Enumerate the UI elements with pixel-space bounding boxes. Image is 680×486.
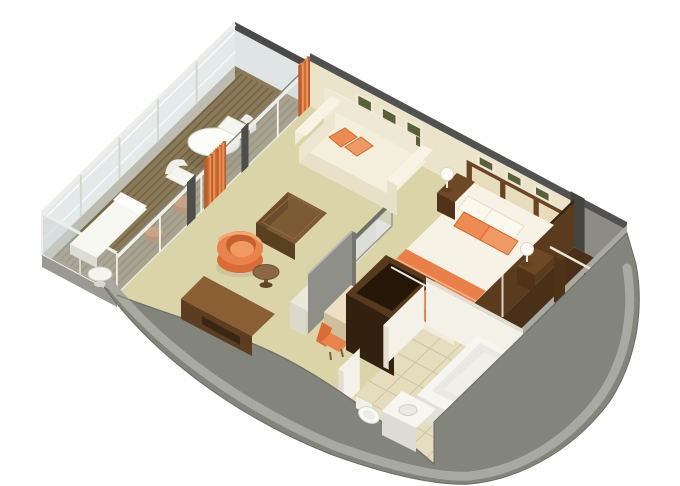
floorplan-page <box>0 0 680 486</box>
door-jamb-1 <box>241 122 248 173</box>
divider-panel-side <box>352 231 356 293</box>
round-side-table <box>253 265 279 280</box>
floorplan-canvas <box>0 0 680 486</box>
curtain-corner <box>300 56 309 116</box>
vanity-sink <box>399 405 417 416</box>
sphere-lamp <box>521 243 534 256</box>
sofa-right-arm-front <box>387 180 397 216</box>
side-table-foot <box>94 281 106 287</box>
lamp-shadow <box>521 262 533 267</box>
sphere-lamp <box>441 168 454 181</box>
door-jamb-2 <box>187 174 196 226</box>
desk-chair-leg <box>330 352 331 360</box>
lamp-shadow <box>441 188 453 193</box>
side-table-top <box>88 267 112 281</box>
round-table-foot <box>260 282 273 288</box>
tub-chair-cushion <box>230 241 254 257</box>
bathroom-west-wall-cap <box>383 325 388 370</box>
